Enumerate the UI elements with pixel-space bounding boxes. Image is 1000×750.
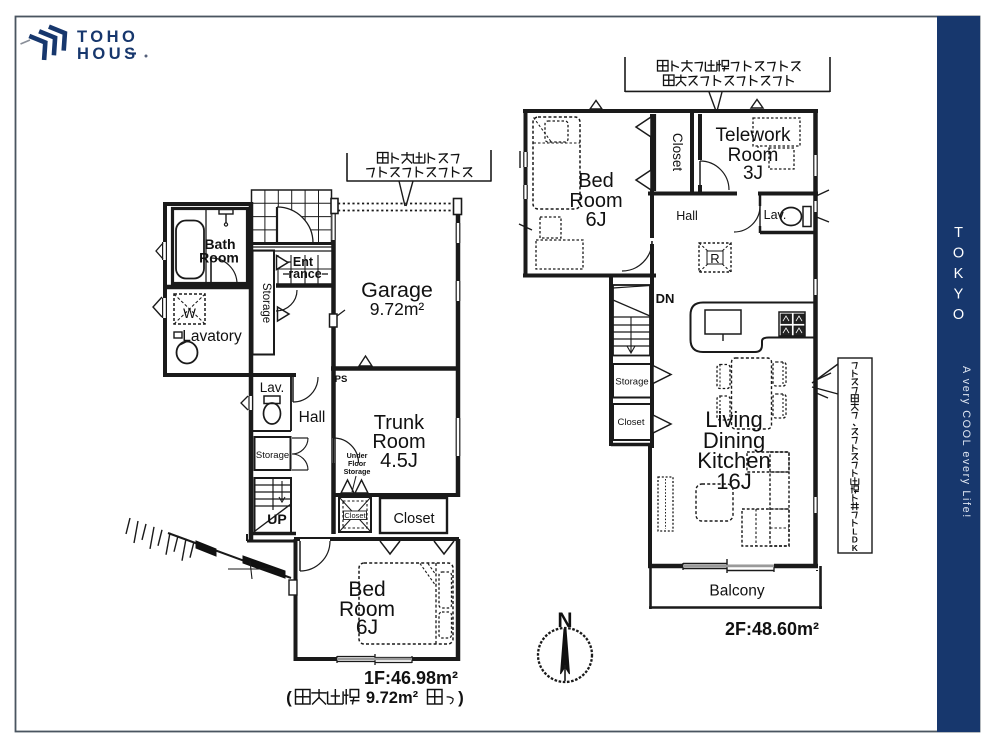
svg-text:rance: rance [288, 267, 321, 281]
svg-text:W: W [183, 306, 196, 321]
svg-text:Balcony: Balcony [709, 583, 764, 600]
svg-text:A very COOL every Life!: A very COOL every Life! [960, 366, 972, 519]
svg-text:Hall: Hall [676, 209, 698, 223]
svg-text:DN: DN [656, 291, 675, 306]
svg-text:PS: PS [335, 374, 348, 385]
svg-text:): ) [458, 688, 464, 707]
svg-text:9.72m²: 9.72m² [370, 299, 425, 319]
svg-text:N: N [557, 609, 572, 632]
svg-text:K: K [852, 543, 858, 553]
svg-text:Lav.: Lav. [260, 380, 285, 395]
svg-text:6J: 6J [356, 616, 378, 639]
svg-text:Closet: Closet [618, 417, 645, 428]
svg-text:Room: Room [199, 250, 239, 266]
svg-text:Y: Y [954, 287, 964, 303]
svg-text:6J: 6J [585, 209, 606, 231]
svg-text:Storage: Storage [615, 377, 648, 388]
svg-text:Storage: Storage [344, 467, 371, 476]
svg-text:Closet: Closet [670, 133, 685, 172]
svg-text:O: O [953, 307, 964, 323]
svg-text:4.5J: 4.5J [380, 450, 418, 472]
svg-text:3J: 3J [743, 163, 763, 184]
svg-text:Telework: Telework [716, 125, 791, 146]
svg-text:Hall: Hall [299, 409, 326, 426]
svg-text:16J: 16J [716, 469, 751, 494]
svg-text:K: K [954, 266, 964, 282]
svg-text:9.72m²: 9.72m² [366, 689, 419, 707]
svg-text:TOHO: TOHO [77, 28, 138, 46]
svg-text:T: T [954, 225, 963, 241]
svg-text:Bed: Bed [578, 170, 614, 192]
svg-text:R: R [710, 251, 719, 266]
svg-text:UP: UP [267, 511, 286, 527]
svg-text:Storage: Storage [260, 283, 272, 323]
svg-text:2F:48.60m²: 2F:48.60m² [725, 619, 819, 639]
svg-text:Lav.: Lav. [764, 208, 787, 222]
svg-text:Storage: Storage [256, 450, 289, 461]
svg-text:Closet: Closet [344, 511, 366, 520]
svg-text:(: ( [286, 688, 292, 707]
svg-text:O: O [953, 246, 964, 262]
svg-text:Closet: Closet [393, 511, 434, 527]
svg-text:1F:46.98m²: 1F:46.98m² [364, 668, 458, 688]
